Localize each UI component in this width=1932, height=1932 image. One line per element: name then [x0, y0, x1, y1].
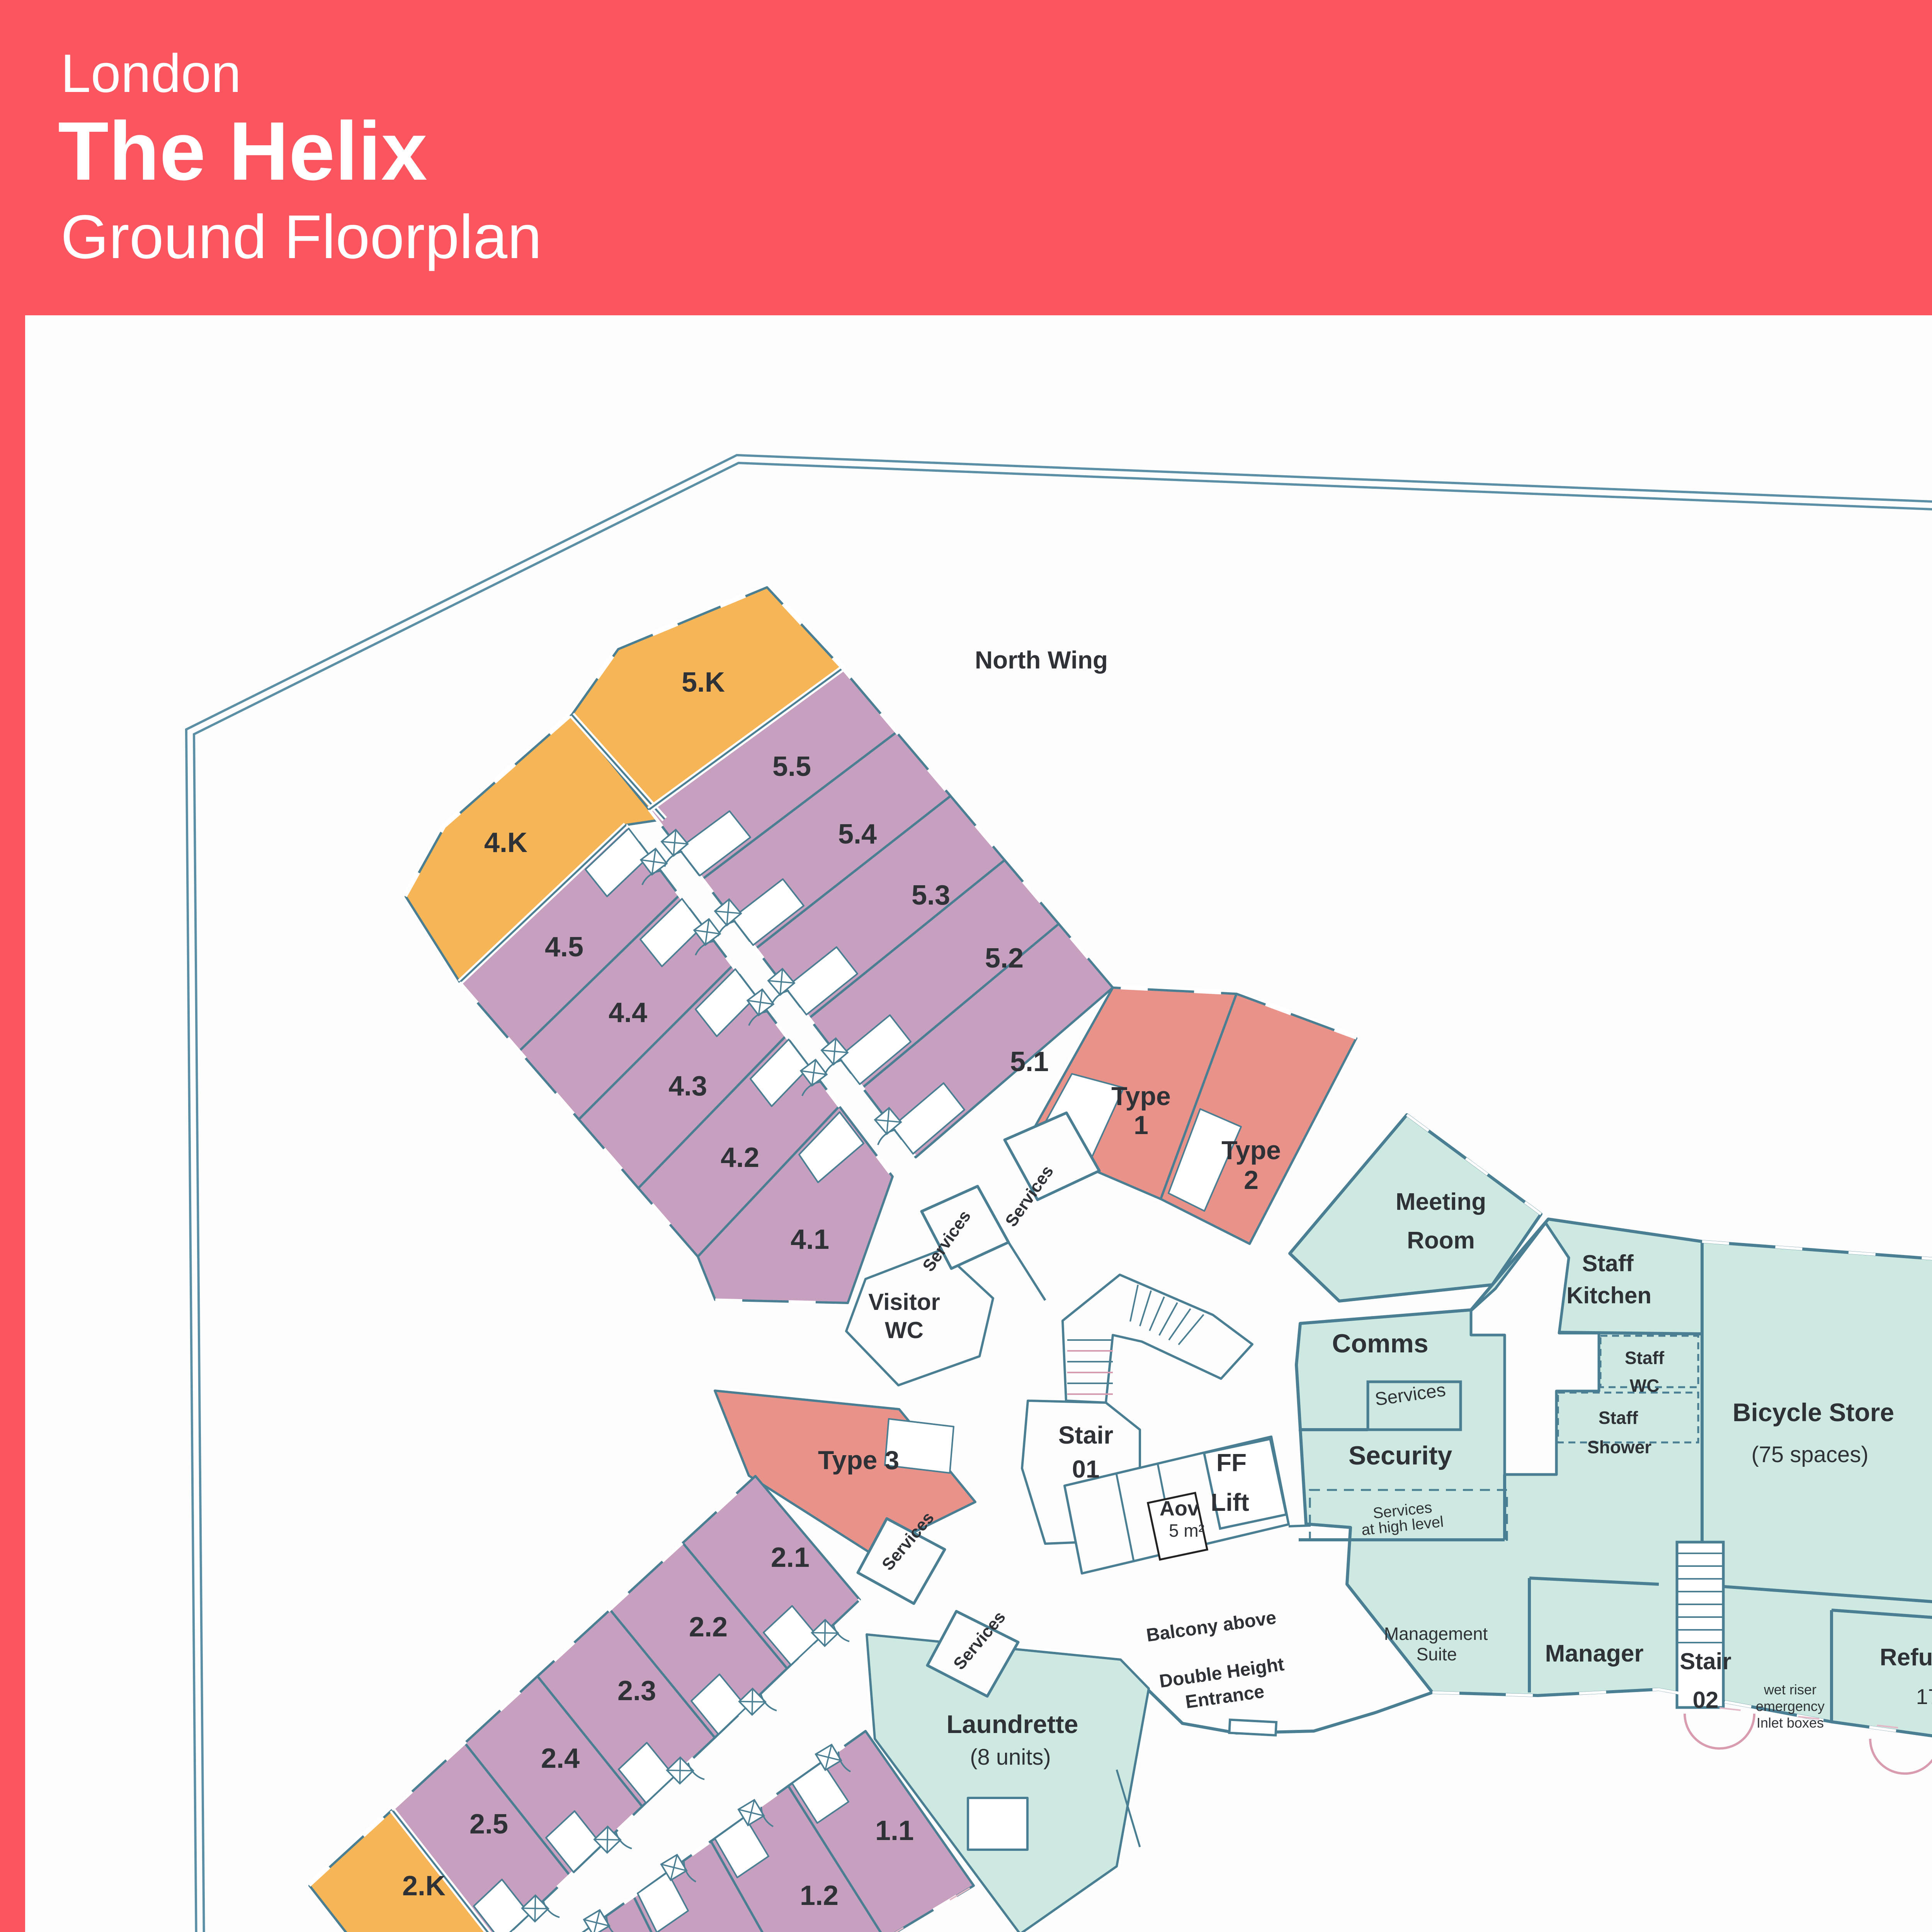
- svg-text:4.1: 4.1: [791, 1224, 829, 1255]
- svg-text:Manager: Manager: [1545, 1640, 1644, 1667]
- svg-text:London: London: [61, 43, 241, 104]
- svg-text:Type 3: Type 3: [818, 1446, 899, 1475]
- svg-text:Stair: Stair: [1058, 1421, 1113, 1449]
- svg-text:4.K: 4.K: [484, 827, 527, 858]
- svg-text:5 m²: 5 m²: [1169, 1520, 1204, 1541]
- svg-text:4.3: 4.3: [668, 1071, 707, 1102]
- svg-text:01: 01: [1072, 1455, 1099, 1483]
- svg-text:17 Bins: 17 Bins: [1916, 1684, 1932, 1709]
- svg-text:wet riser: wet riser: [1764, 1682, 1816, 1697]
- svg-text:Staff: Staff: [1582, 1250, 1634, 1276]
- svg-text:2.2: 2.2: [689, 1612, 728, 1643]
- svg-text:FF: FF: [1216, 1449, 1247, 1476]
- svg-text:5.4: 5.4: [838, 819, 877, 850]
- svg-text:Security: Security: [1349, 1441, 1452, 1470]
- svg-text:5.1: 5.1: [1010, 1046, 1049, 1077]
- svg-text:Laundrette: Laundrette: [946, 1710, 1078, 1738]
- svg-text:1: 1: [1134, 1111, 1148, 1140]
- svg-text:North Wing: North Wing: [975, 646, 1108, 674]
- svg-text:Comms: Comms: [1332, 1329, 1428, 1358]
- svg-text:4.5: 4.5: [545, 932, 583, 963]
- svg-text:Meeting: Meeting: [1396, 1189, 1486, 1215]
- svg-text:Type: Type: [1221, 1136, 1281, 1165]
- svg-text:Shower: Shower: [1587, 1437, 1651, 1457]
- svg-text:(75 spaces): (75 spaces): [1751, 1442, 1868, 1467]
- svg-text:4.2: 4.2: [721, 1142, 759, 1173]
- svg-text:2.4: 2.4: [541, 1743, 580, 1774]
- svg-text:Staff: Staff: [1625, 1348, 1665, 1368]
- svg-text:Type: Type: [1111, 1082, 1171, 1111]
- svg-text:5.K: 5.K: [682, 667, 725, 698]
- svg-text:Inlet boxes: Inlet boxes: [1757, 1715, 1824, 1731]
- svg-text:Staff: Staff: [1599, 1408, 1638, 1428]
- svg-text:1.2: 1.2: [800, 1880, 838, 1911]
- svg-text:02: 02: [1693, 1687, 1719, 1713]
- svg-text:(8 units): (8 units): [970, 1745, 1051, 1770]
- svg-text:Room: Room: [1407, 1227, 1475, 1254]
- svg-text:5.2: 5.2: [985, 943, 1024, 974]
- svg-text:Bicycle Store: Bicycle Store: [1733, 1398, 1894, 1427]
- svg-text:emergency: emergency: [1756, 1698, 1825, 1714]
- svg-text:Kitchen: Kitchen: [1566, 1282, 1651, 1308]
- svg-text:Lift: Lift: [1211, 1488, 1249, 1516]
- svg-text:2.1: 2.1: [771, 1542, 810, 1573]
- svg-text:WC: WC: [1630, 1376, 1660, 1396]
- svg-text:1.1: 1.1: [875, 1815, 914, 1846]
- svg-text:4.4: 4.4: [609, 997, 647, 1028]
- svg-text:2.K: 2.K: [402, 1871, 446, 1901]
- svg-text:2.3: 2.3: [617, 1675, 656, 1706]
- svg-text:WC: WC: [885, 1317, 923, 1343]
- svg-text:The Helix: The Helix: [58, 104, 427, 197]
- svg-text:Suite: Suite: [1417, 1644, 1457, 1664]
- svg-text:5.5: 5.5: [772, 751, 811, 782]
- svg-text:Refuse Store: Refuse Store: [1880, 1644, 1932, 1671]
- svg-text:2: 2: [1244, 1165, 1259, 1195]
- svg-text:Management: Management: [1384, 1624, 1488, 1644]
- svg-text:2.5: 2.5: [469, 1809, 508, 1840]
- svg-text:Aov: Aov: [1160, 1497, 1199, 1520]
- svg-text:Stair: Stair: [1680, 1648, 1731, 1674]
- svg-text:Ground Floorplan: Ground Floorplan: [61, 202, 542, 271]
- svg-text:5.3: 5.3: [912, 880, 950, 911]
- svg-text:Visitor: Visitor: [868, 1289, 940, 1315]
